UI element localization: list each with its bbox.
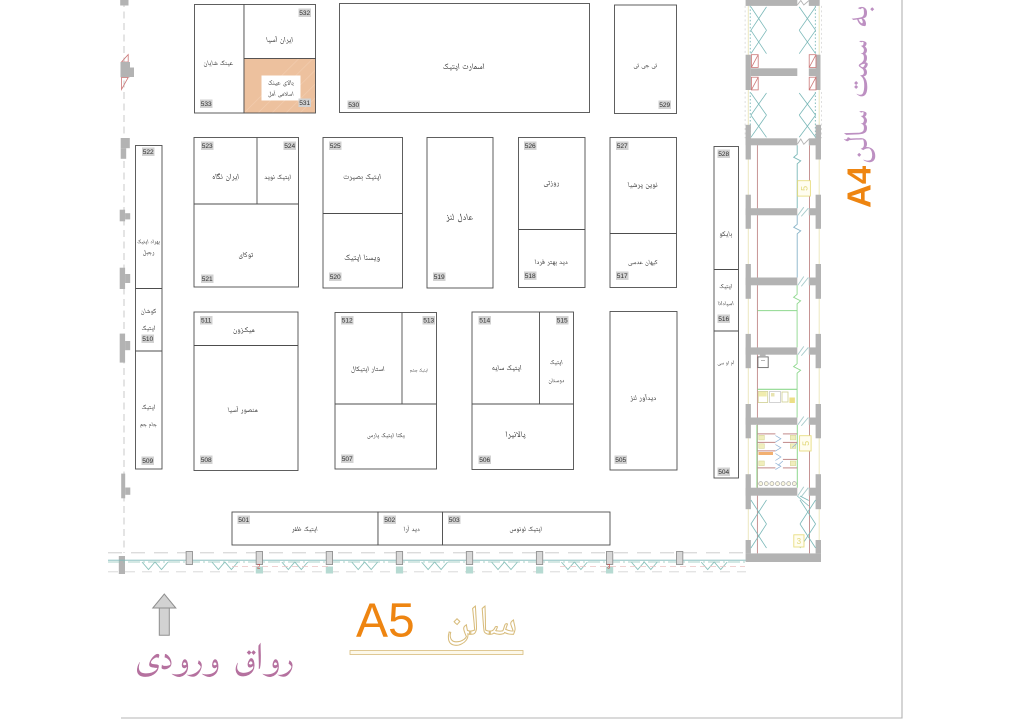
svg-text:5: 5 [801, 441, 811, 446]
svg-text:524: 524 [284, 143, 295, 150]
svg-text:506: 506 [479, 457, 490, 464]
svg-text:501: 501 [238, 517, 249, 524]
svg-text:502: 502 [384, 517, 395, 524]
svg-text:520: 520 [330, 274, 341, 281]
svg-text:515: 515 [557, 318, 568, 325]
svg-text:A4: A4 [841, 165, 878, 208]
svg-text:508: 508 [201, 457, 212, 464]
svg-text:5: 5 [800, 186, 810, 191]
svg-text:522: 522 [143, 149, 154, 156]
svg-text:505: 505 [615, 457, 626, 464]
svg-text:507: 507 [342, 456, 353, 463]
svg-text:503: 503 [449, 517, 460, 524]
svg-text:517: 517 [617, 273, 628, 280]
svg-text:518: 518 [525, 273, 536, 280]
svg-text:532: 532 [299, 10, 310, 17]
svg-text:512: 512 [342, 318, 353, 325]
svg-text:514: 514 [479, 318, 490, 325]
svg-text:511: 511 [201, 318, 212, 325]
svg-text:516: 516 [718, 316, 729, 323]
svg-text:509: 509 [142, 458, 153, 465]
svg-text:529: 529 [659, 102, 670, 109]
svg-text:523: 523 [202, 143, 213, 150]
svg-text:531: 531 [299, 100, 310, 107]
svg-text:3: 3 [797, 537, 802, 546]
svg-text:504: 504 [718, 469, 729, 476]
svg-text:510: 510 [142, 336, 153, 343]
svg-text:521: 521 [202, 276, 213, 283]
svg-text:528: 528 [718, 151, 729, 158]
svg-text:527: 527 [617, 143, 628, 150]
svg-text:A5: A5 [356, 595, 415, 648]
svg-text:533: 533 [201, 101, 212, 108]
svg-text:519: 519 [434, 274, 445, 281]
svg-text:530: 530 [348, 102, 359, 109]
svg-text:526: 526 [525, 143, 536, 150]
svg-text:525: 525 [330, 143, 341, 150]
svg-text:513: 513 [423, 318, 434, 325]
